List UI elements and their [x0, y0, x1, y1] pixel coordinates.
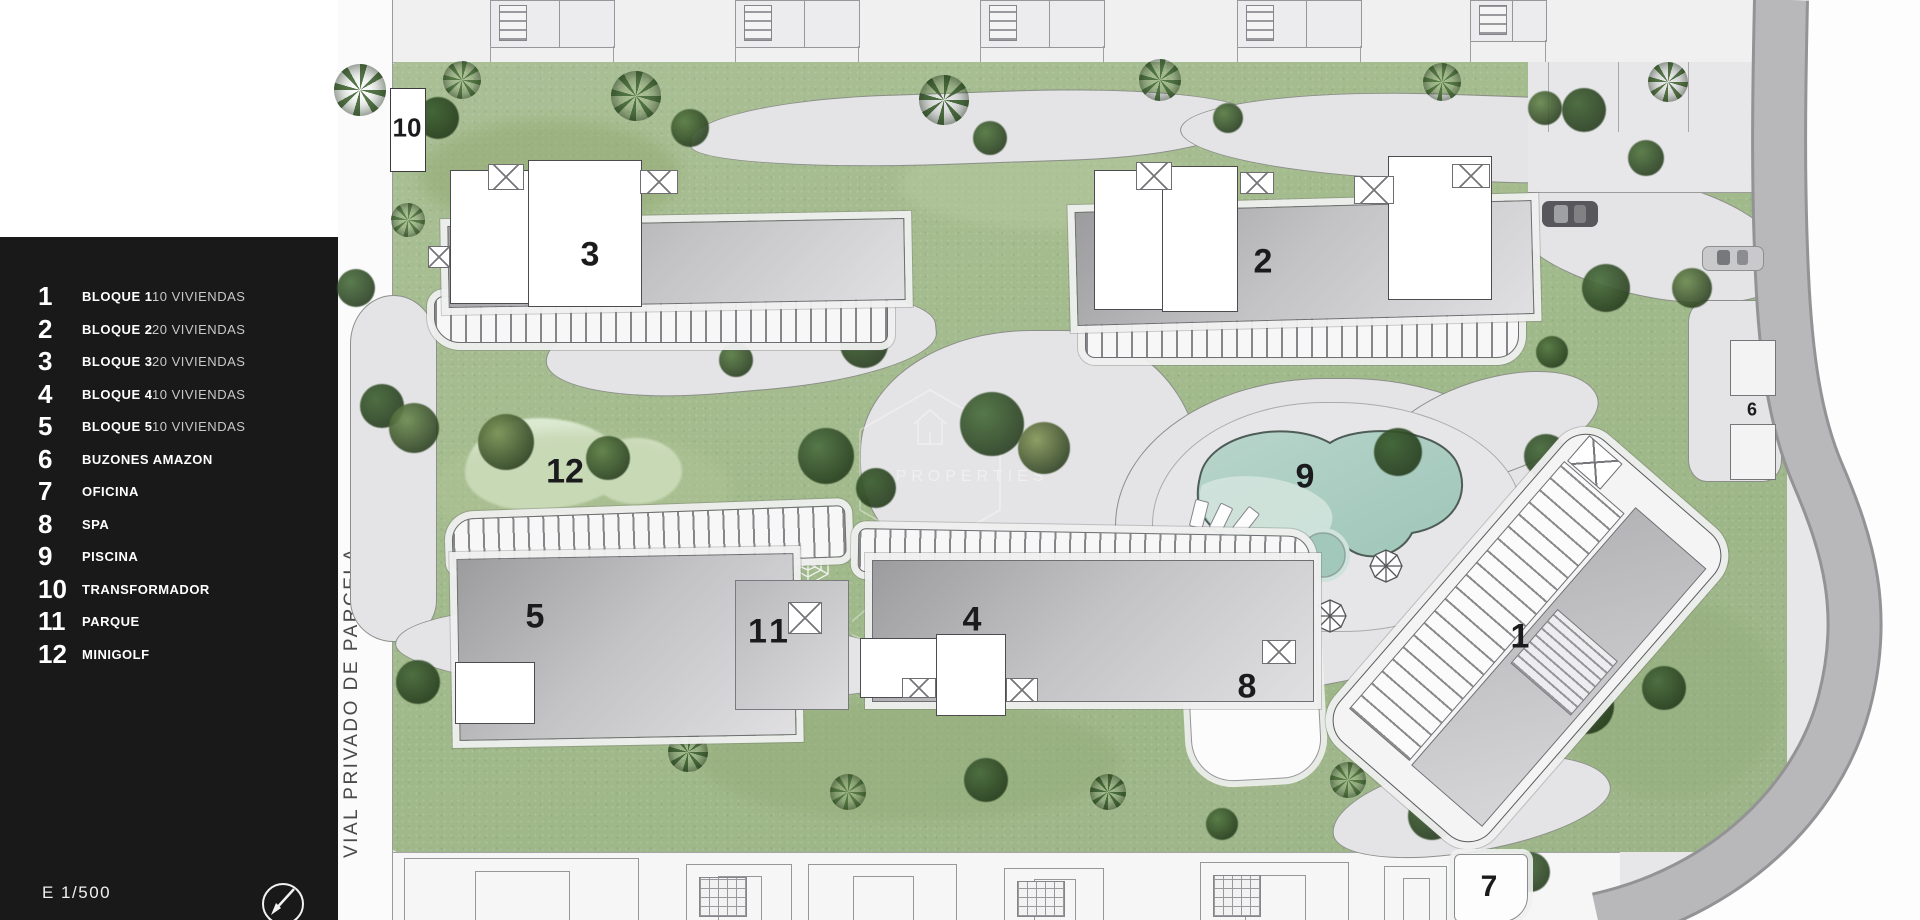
tree-icon: [671, 109, 709, 147]
palm-tree-icon: [611, 71, 661, 121]
tree-icon: [1018, 422, 1070, 474]
building-2-penthouse: [1094, 170, 1166, 310]
plan-label-transformador: 10: [393, 113, 422, 144]
tree-icon: [798, 428, 854, 484]
plan-label-minigolf: 12: [546, 453, 584, 492]
tree-icon: [1536, 336, 1568, 368]
car-icon: [1542, 201, 1598, 227]
palm-tree-icon: [668, 732, 708, 772]
plan-label-bloque-1: 1: [1511, 618, 1530, 657]
plan-label-bloque-2: 2: [1254, 243, 1273, 282]
skylight-icon: [902, 678, 936, 698]
building-2-penthouse: [1162, 166, 1238, 312]
site-plan: PROPERTIES 10 3 2 12 9 5 11 4 1 8 6 7 VI…: [0, 0, 1920, 920]
skylight-icon: [1452, 164, 1490, 188]
parasol-icon: [1313, 599, 1347, 633]
plan-label-parque: 11: [748, 613, 792, 652]
plan-label-oficina: 7: [1481, 870, 1498, 904]
palm-tree-icon: [830, 774, 866, 810]
plan-label-piscina: 9: [1296, 458, 1315, 497]
skylight-icon: [488, 164, 524, 190]
tree-icon: [856, 468, 896, 508]
palm-tree-icon: [1423, 63, 1461, 101]
palm-tree-icon: [443, 61, 481, 99]
skylight-icon: [428, 246, 450, 268]
skylight-icon: [1006, 678, 1038, 702]
tree-icon: [960, 392, 1024, 456]
tree-icon: [719, 343, 753, 377]
tree-icon: [396, 660, 440, 704]
tree-icon: [1206, 808, 1238, 840]
tree-icon: [1562, 88, 1606, 132]
car-icon: [1702, 246, 1764, 271]
palm-tree-icon: [1090, 774, 1126, 810]
skylight-icon: [1136, 162, 1172, 190]
palm-tree-icon: [391, 203, 425, 237]
skylight-icon: [1354, 176, 1394, 204]
tree-icon: [586, 436, 630, 480]
plan-label-bloque-4: 4: [963, 601, 982, 640]
parasol-icon: [1369, 549, 1403, 583]
tree-icon: [964, 758, 1008, 802]
tree-icon: [1672, 268, 1712, 308]
building-5-penthouse: [455, 662, 535, 724]
plan-label-spa: 8: [1238, 668, 1257, 707]
palm-tree-icon: [919, 75, 969, 125]
plan-label-buzones: 6: [1747, 400, 1757, 421]
tree-icon: [478, 414, 534, 470]
palm-tree-icon: [1330, 762, 1366, 798]
tree-icon: [1374, 428, 1422, 476]
tree-icon: [1528, 91, 1562, 125]
palm-tree-icon: [1648, 62, 1688, 102]
tree-icon: [1642, 666, 1686, 710]
skylight-icon: [1240, 172, 1274, 194]
tree-icon: [1213, 103, 1243, 133]
tree-icon: [1628, 140, 1664, 176]
entrance-structure: [1730, 340, 1776, 396]
tree-icon: [389, 403, 439, 453]
tree-icon: [1582, 264, 1630, 312]
building-3-penthouse: [450, 170, 532, 304]
tree-icon: [973, 121, 1007, 155]
skylight-icon: [788, 602, 822, 634]
skylight-icon: [1262, 640, 1296, 664]
tree-icon: [337, 269, 375, 307]
building-3-penthouse: [528, 160, 642, 307]
building-4-penthouse: [936, 634, 1006, 716]
skylight-icon: [640, 170, 678, 194]
mailboxes-structure: [1730, 424, 1776, 480]
plan-label-bloque-3: 3: [581, 236, 600, 275]
palm-tree-icon: [1139, 59, 1181, 101]
plan-label-bloque-5: 5: [526, 598, 545, 637]
palm-tree-icon: [334, 64, 386, 116]
perimeter-road: [0, 0, 1920, 920]
